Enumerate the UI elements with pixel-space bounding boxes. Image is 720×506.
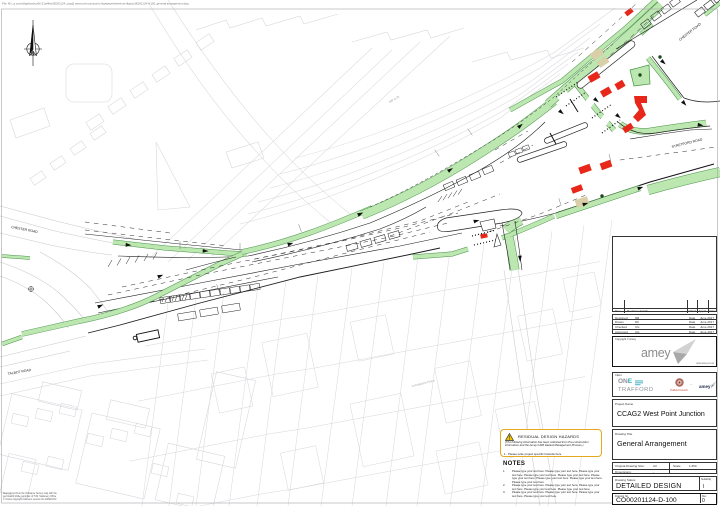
svg-text:N: N bbox=[31, 51, 34, 56]
svg-text:© Crown copyright reserved. Li: © Crown copyright reserved. Licence No 1… bbox=[3, 498, 57, 501]
svg-text:Livingstone Place: Livingstone Place bbox=[411, 378, 435, 388]
svg-text:Reproduced from the Ordnance S: Reproduced from the Ordnance Survey map … bbox=[3, 492, 57, 495]
svg-text:MP 0.75: MP 0.75 bbox=[389, 95, 401, 104]
svg-text:STRETFORD ROAD: STRETFORD ROAD bbox=[671, 137, 703, 149]
svg-text:TALBOT ROAD: TALBOT ROAD bbox=[7, 368, 31, 376]
svg-text:CHESTER ROAD: CHESTER ROAD bbox=[11, 225, 39, 234]
svg-text:CHESTER ROAD: CHESTER ROAD bbox=[678, 22, 702, 42]
svg-text:permission of the controller o: permission of the controller of H.M. Sta… bbox=[3, 495, 57, 498]
svg-text:File: M:\_a.consult\gehani\co0: File: M:\_a.consult\gehani\co06-21\affle… bbox=[2, 2, 189, 6]
